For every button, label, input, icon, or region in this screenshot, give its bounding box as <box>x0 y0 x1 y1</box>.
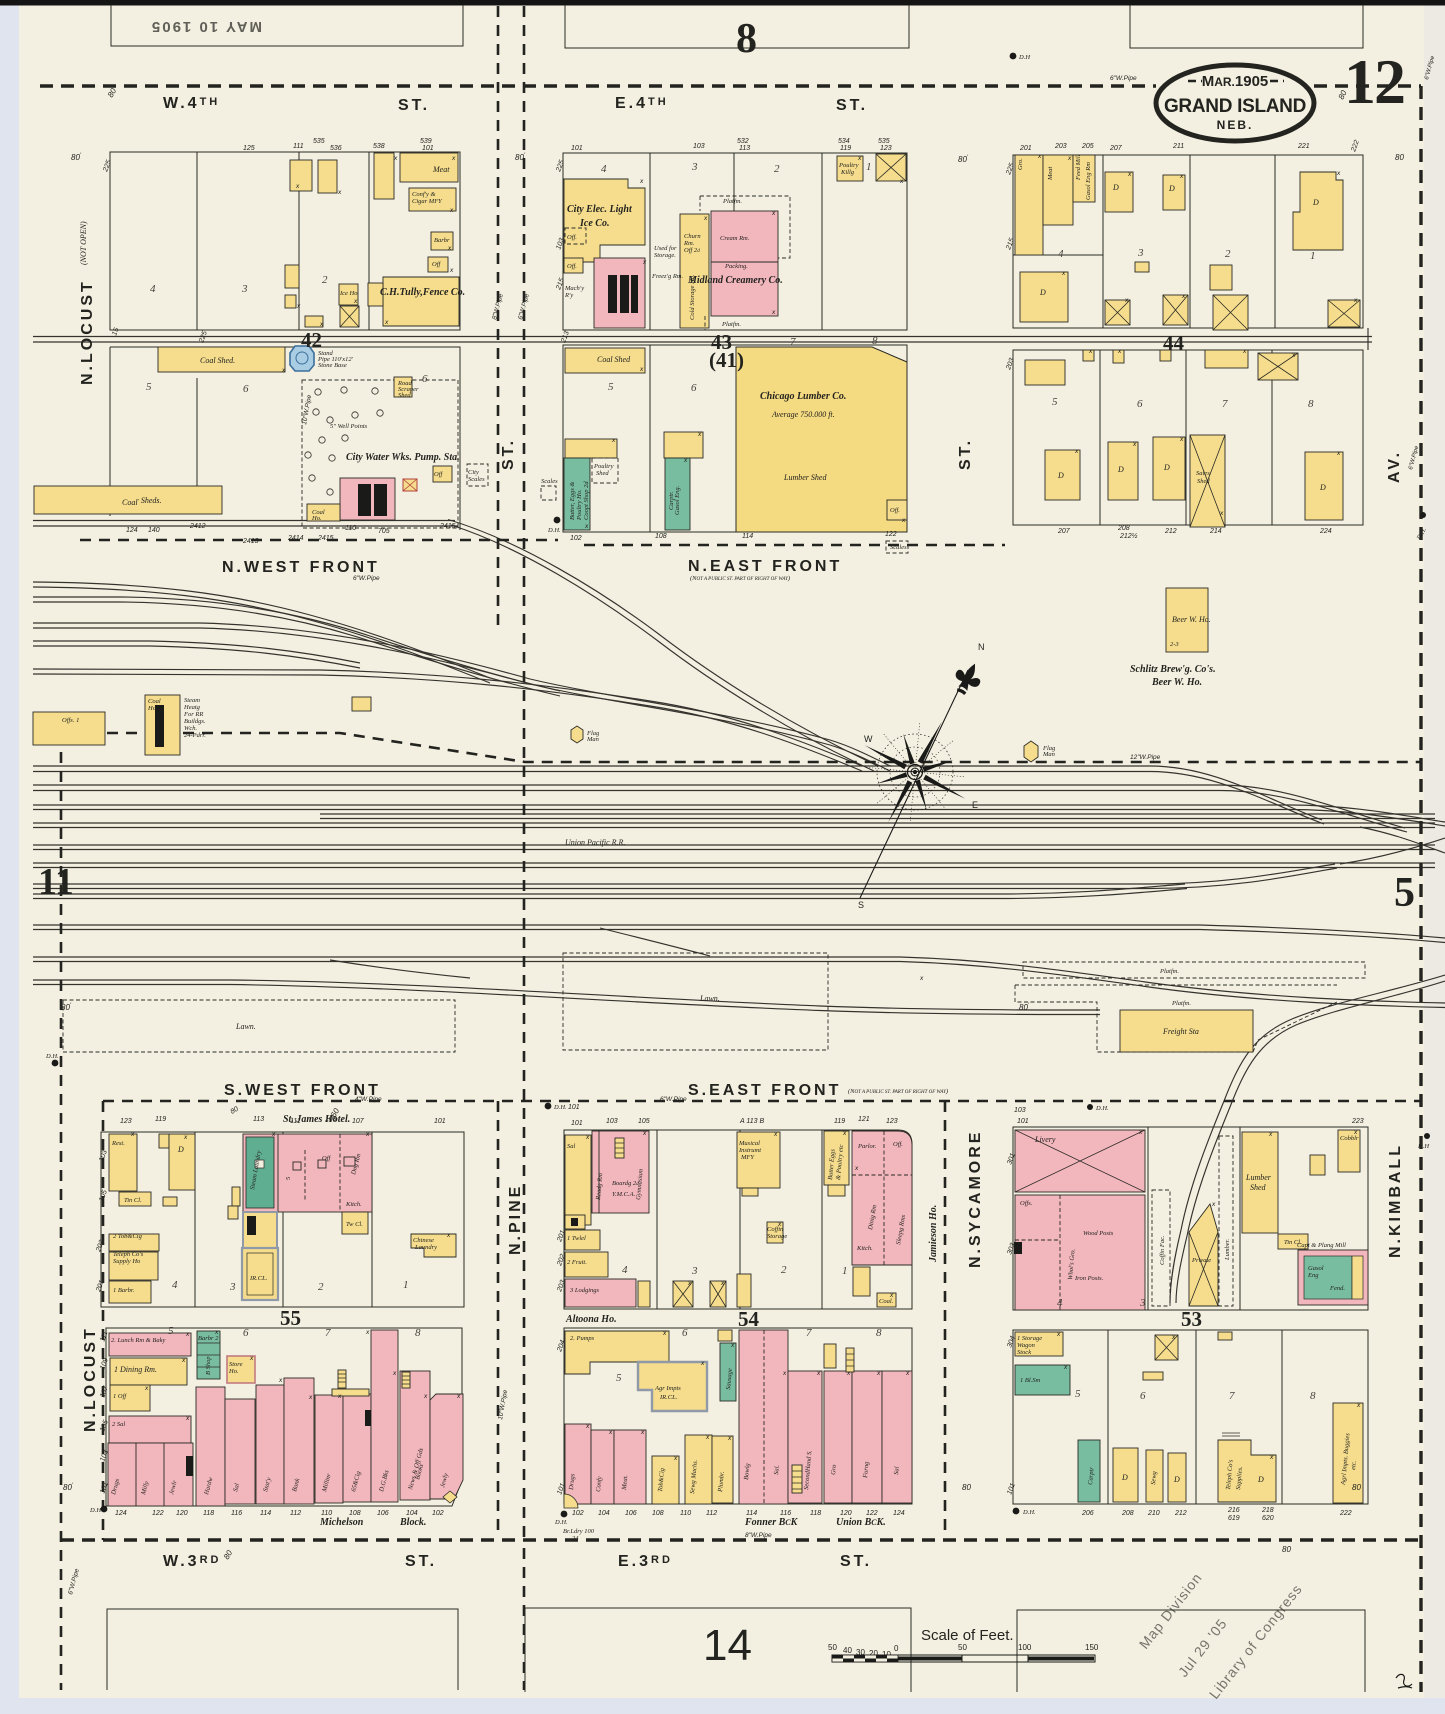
svg-text:Tw Cl.: Tw Cl. <box>346 1221 363 1228</box>
svg-text:Musical: Musical <box>738 1140 760 1147</box>
svg-text:D: D <box>1112 183 1119 192</box>
svg-text:221: 221 <box>1297 143 1310 150</box>
svg-text:538: 538 <box>373 143 385 150</box>
svg-text:Cobblr: Cobblr <box>1340 1135 1359 1142</box>
svg-text:Gasol: Gasol <box>1308 1265 1324 1272</box>
svg-text:Schlitz Brew'g. Co's.: Schlitz Brew'g. Co's. <box>1130 664 1216 675</box>
svg-text:208: 208 <box>1121 1510 1134 1517</box>
svg-text:Capt & Plang Mill: Capt & Plang Mill <box>1297 1242 1346 1249</box>
svg-text:Storage: Storage <box>767 1233 787 1240</box>
svg-text:Michelson: Michelson <box>319 1517 364 1528</box>
svg-text:100: 100 <box>1018 1643 1032 1652</box>
svg-text:Ice Co.: Ice Co. <box>579 218 609 229</box>
svg-text:150: 150 <box>1085 1643 1099 1652</box>
svg-text:Man: Man <box>1042 751 1055 758</box>
svg-text:101: 101 <box>434 1118 446 1125</box>
svg-text:216: 216 <box>1227 1507 1240 1514</box>
svg-text:218: 218 <box>1261 1507 1274 1514</box>
svg-text:80: 80 <box>1282 1545 1291 1554</box>
svg-text:109: 109 <box>325 1116 337 1123</box>
svg-text:City Water Wks. Pump. Sta.: City Water Wks. Pump. Sta. <box>346 452 460 463</box>
svg-text:6: 6 <box>1140 1390 1146 1402</box>
svg-text:Y.M.C.A.: Y.M.C.A. <box>612 1191 636 1198</box>
svg-text:5: 5 <box>608 381 614 393</box>
svg-text:Union BCK.: Union BCK. <box>836 1517 886 1528</box>
svg-text:City: City <box>468 469 479 476</box>
svg-text:Man: Man <box>586 736 599 743</box>
svg-text:120: 120 <box>176 1510 188 1517</box>
svg-text:1: 1 <box>403 1279 409 1291</box>
svg-text:122: 122 <box>866 1510 878 1517</box>
svg-text:14: 14 <box>703 1621 752 1670</box>
svg-text:Scales: Scales <box>890 544 907 551</box>
svg-text:Altoona Ho.: Altoona Ho. <box>565 1314 617 1325</box>
svg-text:Sal: Sal <box>893 1466 901 1475</box>
svg-text:112: 112 <box>706 1510 717 1517</box>
svg-text:Off 2d: Off 2d <box>684 247 700 254</box>
svg-text:44: 44 <box>1163 331 1185 355</box>
svg-text:110: 110 <box>321 1510 332 1517</box>
svg-text:203: 203 <box>1054 143 1067 150</box>
svg-text:Scales: Scales <box>541 478 558 485</box>
svg-text:S: S <box>858 900 864 910</box>
svg-text:Beer W. Ho.: Beer W. Ho. <box>1151 677 1202 688</box>
svg-text:8: 8 <box>1308 398 1314 410</box>
svg-text:ST.: ST. <box>836 97 868 114</box>
svg-text:8: 8 <box>876 1327 882 1339</box>
svg-text:Rest.: Rest. <box>111 1140 125 1147</box>
svg-text:Stone Base: Stone Base <box>318 362 347 369</box>
svg-text:1: 1 <box>1310 250 1316 262</box>
svg-text:3: 3 <box>1137 247 1144 259</box>
svg-text:Off: Off <box>434 471 444 478</box>
svg-text:4: 4 <box>601 163 607 175</box>
svg-text:6: 6 <box>691 382 697 394</box>
svg-text:4: 4 <box>1058 248 1064 260</box>
svg-text:24: 24 <box>572 1535 579 1542</box>
svg-text:Poultry: Poultry <box>838 162 859 169</box>
svg-text:211: 211 <box>1172 143 1184 150</box>
svg-text:201: 201 <box>1019 145 1032 152</box>
svg-text:4"W.Pipe: 4"W.Pipe <box>355 1096 382 1103</box>
svg-text:534: 534 <box>838 138 850 145</box>
svg-text:5: 5 <box>616 1372 622 1384</box>
svg-text:Mach'y: Mach'y <box>564 285 584 292</box>
svg-text:108: 108 <box>655 533 667 540</box>
svg-text:Fend.: Fend. <box>1329 1285 1345 1292</box>
svg-text:Steam: Steam <box>184 697 200 704</box>
svg-text:54: 54 <box>738 1307 760 1331</box>
svg-text:Wagon: Wagon <box>1017 1342 1035 1349</box>
svg-text:50: 50 <box>828 1643 837 1652</box>
svg-text:124: 124 <box>893 1510 905 1517</box>
svg-text:Midland Creamery Co.: Midland Creamery Co. <box>687 275 783 286</box>
svg-text:102: 102 <box>572 1510 584 1517</box>
svg-text:106: 106 <box>625 1510 637 1517</box>
svg-text:NEB.: NEB. <box>1217 118 1254 132</box>
svg-text:Kitch.: Kitch. <box>345 1201 362 1208</box>
svg-text:80: 80 <box>962 1483 971 1492</box>
svg-text:ST.: ST. <box>500 438 517 470</box>
svg-text:D: D <box>1173 1475 1180 1484</box>
svg-text:207: 207 <box>1109 145 1123 152</box>
svg-text:5: 5 <box>1052 396 1058 408</box>
svg-text:6: 6 <box>243 383 249 395</box>
svg-text:1 Barbr.: 1 Barbr. <box>113 1287 135 1294</box>
svg-text:Shed: Shed <box>1250 1183 1267 1192</box>
svg-text:Sewg: Sewg <box>1150 1470 1158 1485</box>
svg-text:Beer W. Ho.: Beer W. Ho. <box>1172 615 1211 624</box>
svg-text:6"W.Pipe: 6"W.Pipe <box>1110 75 1137 82</box>
svg-text:24-Pdrr.: 24-Pdrr. <box>184 732 206 739</box>
svg-text:Confy: Confy <box>595 1476 603 1492</box>
svg-text:Union Pacific R.R.: Union Pacific R.R. <box>565 838 625 847</box>
svg-text:6: 6 <box>1137 398 1143 410</box>
svg-text:535: 535 <box>313 138 325 145</box>
svg-text:3: 3 <box>691 161 698 173</box>
svg-text:104: 104 <box>406 1510 418 1517</box>
svg-text:535: 535 <box>878 138 890 145</box>
svg-text:40: 40 <box>843 1646 852 1655</box>
svg-text:223: 223 <box>1351 1118 1364 1125</box>
svg-text:MAY 10 1905: MAY 10 1905 <box>150 18 262 35</box>
svg-text:118: 118 <box>810 1510 821 1517</box>
svg-text:101: 101 <box>1017 1118 1029 1125</box>
svg-text:Platfm.: Platfm. <box>1171 1000 1191 1007</box>
svg-text:4: 4 <box>1057 1297 1063 1309</box>
svg-text:123: 123 <box>120 1118 132 1125</box>
svg-text:3: 3 <box>229 1281 236 1293</box>
svg-text:D.H.: D.H. <box>553 1104 567 1111</box>
svg-text:206: 206 <box>1081 1510 1094 1517</box>
svg-text:1 Off: 1 Off <box>113 1393 127 1400</box>
svg-text:2: 2 <box>781 1264 787 1276</box>
svg-text:6: 6 <box>422 373 428 385</box>
svg-text:Scale of Feet.: Scale of Feet. <box>921 1627 1014 1644</box>
svg-text:2412: 2412 <box>189 523 206 530</box>
svg-text:Platfm.: Platfm. <box>1159 968 1179 975</box>
svg-text:D.H.: D.H. <box>547 527 561 534</box>
svg-text:120: 120 <box>840 1510 852 1517</box>
svg-text:Sal.: Sal. <box>773 1464 781 1475</box>
svg-text:3 Lodgings: 3 Lodgings <box>569 1287 600 1294</box>
svg-text:Teleph Co's: Teleph Co's <box>113 1251 144 1258</box>
svg-text:2 Tob&Cig: 2 Tob&Cig <box>113 1233 143 1240</box>
svg-text:D: D <box>1163 463 1170 472</box>
svg-text:Scales: Scales <box>468 476 485 483</box>
svg-text:Butter, Eggs &: Butter, Eggs & <box>569 481 576 520</box>
svg-text:205: 205 <box>1081 143 1094 150</box>
svg-text:Parlor.: Parlor. <box>857 1143 877 1150</box>
svg-text:116: 116 <box>780 1510 791 1517</box>
svg-text:IR.CL.: IR.CL. <box>659 1394 678 1401</box>
svg-text:Iron Posts.: Iron Posts. <box>1074 1275 1104 1282</box>
svg-text:Eng: Eng <box>1307 1272 1319 1279</box>
svg-text:208: 208 <box>1117 525 1130 532</box>
svg-text:123: 123 <box>880 145 892 152</box>
svg-text:101: 101 <box>571 1120 583 1127</box>
svg-text:D: D <box>1319 483 1326 492</box>
svg-text:1 Twlel: 1 Twlel <box>567 1235 586 1242</box>
svg-text:Tin Cl.: Tin Cl. <box>124 1197 142 1204</box>
svg-text:ST.: ST. <box>840 1553 872 1570</box>
svg-text:Ho.: Ho. <box>311 515 322 522</box>
svg-text:Lawn.: Lawn. <box>699 994 720 1003</box>
svg-text:11: 11 <box>38 861 74 903</box>
svg-text:Meat: Meat <box>1047 166 1054 181</box>
svg-text:N.LOCUST: N.LOCUST <box>82 1326 99 1432</box>
svg-text:7: 7 <box>325 1327 331 1339</box>
svg-text:4: 4 <box>172 1279 178 1291</box>
svg-text:Meat: Meat <box>432 165 450 174</box>
svg-text:Off: Off <box>322 1155 332 1162</box>
svg-text:214: 214 <box>1209 528 1222 535</box>
svg-text:0: 0 <box>894 1644 899 1653</box>
svg-text:1 Storage: 1 Storage <box>1017 1335 1042 1342</box>
svg-text:6: 6 <box>243 1327 249 1339</box>
svg-text:Sal: Sal <box>567 1143 576 1150</box>
svg-text:Supply Ho: Supply Ho <box>113 1258 141 1265</box>
svg-text:12"W.Pipe: 12"W.Pipe <box>1130 754 1161 761</box>
svg-text:2: 2 <box>1225 248 1231 260</box>
svg-text:114: 114 <box>746 1510 757 1517</box>
svg-text:113: 113 <box>739 145 750 152</box>
svg-text:5: 5 <box>168 1325 174 1337</box>
svg-text:D: D <box>1039 288 1046 297</box>
svg-text:6"W.Pipe: 6"W.Pipe <box>660 1096 687 1103</box>
svg-text:Churn: Churn <box>684 233 701 240</box>
svg-text:D: D <box>1168 184 1175 193</box>
svg-text:Livery: Livery <box>1034 1135 1056 1144</box>
svg-text:108: 108 <box>349 1510 361 1517</box>
svg-text:Off.: Off. <box>567 263 577 270</box>
svg-text:6"W.Pipe: 6"W.Pipe <box>353 575 380 582</box>
svg-text:D: D <box>177 1145 184 1154</box>
svg-text:5: 5 <box>1394 870 1415 916</box>
svg-text:7: 7 <box>1229 1390 1235 1402</box>
svg-text:1: 1 <box>842 1265 848 1277</box>
svg-text:Boardg 2d: Boardg 2d <box>612 1180 639 1187</box>
svg-text:Off: Off <box>432 261 442 268</box>
svg-text:D: D <box>1057 471 1064 480</box>
svg-text:Offs.: Offs. <box>1020 1200 1033 1207</box>
svg-text:1 Dining Rm.: 1 Dining Rm. <box>114 1365 157 1374</box>
svg-text:Barbr 2: Barbr 2 <box>198 1335 219 1342</box>
svg-text:113: 113 <box>253 1116 264 1123</box>
svg-text:Freez'g Rm.: Freez'g Rm. <box>651 273 683 280</box>
svg-text:Private: Private <box>1191 1257 1211 1264</box>
svg-text:103: 103 <box>1014 1107 1026 1114</box>
svg-text:2415: 2415 <box>317 535 334 542</box>
svg-text:Buildgs.: Buildgs. <box>184 718 206 725</box>
svg-text:50: 50 <box>958 1643 967 1652</box>
svg-text:IR.CL.: IR.CL. <box>249 1275 268 1282</box>
svg-text:ST.: ST. <box>398 97 430 114</box>
svg-text:N.LOCUST: N.LOCUST <box>79 279 96 385</box>
svg-text:Killg: Killg <box>840 169 855 176</box>
svg-text:Ho.: Ho. <box>228 1368 239 1375</box>
svg-text:Barbr: Barbr <box>434 237 450 244</box>
svg-text:Carptr.: Carptr. <box>668 491 675 510</box>
svg-text:111: 111 <box>290 1118 301 1125</box>
svg-text:D.H: D.H <box>1018 54 1030 61</box>
svg-text:Rm.: Rm. <box>683 240 695 247</box>
svg-text:N.WEST FRONT: N.WEST FRONT <box>222 559 380 576</box>
svg-text:125: 125 <box>243 145 255 152</box>
svg-text:Stock: Stock <box>1017 1349 1031 1356</box>
svg-text:N.PINE: N.PINE <box>507 1184 524 1255</box>
svg-text:etc.: etc. <box>1350 1460 1358 1470</box>
svg-text:For RR: For RR <box>183 711 203 718</box>
svg-text:ST.: ST. <box>405 1553 437 1570</box>
svg-text:212: 212 <box>1164 528 1177 535</box>
svg-text:Lumber Shed: Lumber Shed <box>783 473 827 482</box>
svg-text:222: 222 <box>1339 1510 1352 1517</box>
svg-text:101: 101 <box>568 1104 580 1111</box>
svg-text:122: 122 <box>885 531 897 538</box>
svg-text:B Shop: B Shop <box>205 1356 212 1375</box>
svg-text:Conf'y &: Conf'y & <box>412 191 437 198</box>
svg-text:Wch.: Wch. <box>184 725 198 732</box>
svg-text:MFY: MFY <box>740 1154 755 1161</box>
svg-text:Cream Rm.: Cream Rm. <box>720 235 750 242</box>
svg-text:103: 103 <box>606 1118 618 1125</box>
svg-text:101: 101 <box>571 145 583 152</box>
svg-text:D.H.: D.H. <box>45 1053 59 1060</box>
svg-text:D.H: D.H <box>1417 1143 1429 1150</box>
svg-text:6: 6 <box>682 1327 688 1339</box>
svg-text:R'y: R'y <box>564 292 573 299</box>
svg-text:107: 107 <box>352 1118 365 1125</box>
svg-text:Packing.: Packing. <box>724 263 748 270</box>
svg-text:2: 2 <box>774 163 780 175</box>
svg-text:Platfm.: Platfm. <box>721 321 741 328</box>
svg-text:Poultry Ho.: Poultry Ho. <box>576 489 583 521</box>
svg-text:Meat.: Meat. <box>621 1474 629 1491</box>
svg-text:Kitch.: Kitch. <box>856 1245 873 1252</box>
svg-text:116: 116 <box>231 1510 242 1517</box>
svg-text:7: 7 <box>790 336 796 348</box>
svg-text:112: 112 <box>290 1510 301 1517</box>
svg-text:Heatg: Heatg <box>183 704 201 711</box>
svg-text:Off.: Off. <box>567 234 577 241</box>
svg-text:539: 539 <box>420 138 432 145</box>
svg-text:2413: 2413 <box>242 538 259 545</box>
svg-text:110: 110 <box>680 1510 691 1517</box>
svg-text:Used for: Used for <box>654 245 677 252</box>
svg-text:Average 750.000 ft.: Average 750.000 ft. <box>771 410 835 419</box>
svg-text:53: 53 <box>1181 1307 1202 1331</box>
svg-text:Coal.: Coal. <box>879 1298 894 1305</box>
svg-text:Ice Ho: Ice Ho <box>339 290 358 297</box>
svg-text:2 Sal: 2 Sal <box>112 1421 125 1428</box>
svg-text:Block.: Block. <box>399 1517 426 1528</box>
svg-text:S.EAST FRONT: S.EAST FRONT <box>688 1082 841 1099</box>
svg-text:2. Lunch Rm & Baky: 2. Lunch Rm & Baky <box>111 1337 165 1344</box>
svg-text:Sales: Sales <box>1196 470 1210 477</box>
svg-text:620: 620 <box>1262 1515 1274 1522</box>
svg-text:D.H.: D.H. <box>1095 1105 1109 1112</box>
svg-text:4: 4 <box>150 283 156 295</box>
svg-text:MAR.1905: MAR.1905 <box>1202 73 1269 90</box>
svg-text:D.H: D.H <box>89 1507 101 1514</box>
svg-text:Fonner BCK: Fonner BCK <box>744 1517 799 1528</box>
svg-text:D: D <box>1117 465 1124 474</box>
svg-text:Gasol Eng Rm: Gasol Eng Rm <box>1085 162 1092 200</box>
svg-text:102: 102 <box>570 535 582 542</box>
svg-text:(NOT A PUBLIC ST. PART OF RIGH: (NOT A PUBLIC ST. PART OF RIGHT OF WAY) <box>848 1088 948 1095</box>
svg-text:114: 114 <box>742 533 753 540</box>
svg-text:(41): (41) <box>709 348 744 372</box>
svg-text:5: 5 <box>146 381 152 393</box>
svg-text:Coal: Coal <box>148 698 161 705</box>
svg-text:105: 105 <box>638 1118 650 1125</box>
svg-text:N.EAST FRONT: N.EAST FRONT <box>688 558 842 575</box>
svg-text:212½: 212½ <box>1119 532 1138 540</box>
svg-text:119: 119 <box>840 145 851 152</box>
svg-text:W: W <box>864 734 873 744</box>
svg-text:140: 140 <box>148 527 160 534</box>
svg-text:8: 8 <box>1310 1390 1316 1402</box>
svg-text:Freight Sta: Freight Sta <box>1162 1027 1199 1036</box>
svg-text:D.H.: D.H. <box>1022 1509 1036 1516</box>
svg-text:Agr Impts: Agr Impts <box>654 1385 681 1392</box>
svg-text:Platfm.: Platfm. <box>722 198 742 205</box>
svg-text:N.SYCAMORE: N.SYCAMORE <box>967 1130 984 1268</box>
svg-text:2415: 2415 <box>439 523 456 530</box>
svg-text:5" Well Points: 5" Well Points <box>330 423 368 430</box>
svg-text:619: 619 <box>1228 1515 1240 1522</box>
svg-text:55: 55 <box>280 1306 301 1330</box>
svg-text:8: 8 <box>415 1327 421 1339</box>
svg-text:3: 3 <box>1139 1297 1146 1309</box>
svg-text:E: E <box>972 800 978 810</box>
svg-text:110: 110 <box>345 525 356 532</box>
svg-text:(NOT A PUBLIC ST. PART OF RIGH: (NOT A PUBLIC ST. PART OF RIGHT OF WAY) <box>690 575 790 582</box>
svg-text:Off.: Off. <box>890 507 900 514</box>
svg-text:Chinese: Chinese <box>413 1237 434 1244</box>
svg-text:C.H.Tully,Fence Co.: C.H.Tully,Fence Co. <box>380 287 465 298</box>
svg-text:Ho.: Ho. <box>147 705 158 712</box>
svg-text:Gro.: Gro. <box>1017 158 1024 170</box>
svg-text:108: 108 <box>652 1510 664 1517</box>
svg-text:N: N <box>978 642 985 652</box>
svg-text:Coffin Fac.: Coffin Fac. <box>1159 1235 1166 1265</box>
svg-text:Shed: Shed <box>398 392 411 399</box>
svg-text:Store: Store <box>229 1361 243 1368</box>
svg-text:121: 121 <box>858 1116 870 1123</box>
svg-text:2: 2 <box>322 274 328 286</box>
svg-text:Gro: Gro <box>830 1464 838 1476</box>
svg-text:536: 536 <box>330 145 342 152</box>
svg-text:2 Fruit.: 2 Fruit. <box>567 1259 587 1266</box>
svg-text:124: 124 <box>126 527 138 534</box>
svg-text:Wood Posts: Wood Posts <box>1083 1230 1114 1237</box>
svg-text:106: 106 <box>377 1510 389 1517</box>
svg-text:119: 119 <box>155 1116 166 1123</box>
svg-text:5: 5 <box>1075 1388 1081 1400</box>
svg-text:Br.Ldry 100: Br.Ldry 100 <box>563 1528 595 1535</box>
svg-text:Coal Shed.: Coal Shed. <box>200 356 235 365</box>
svg-text:Cigar MFY: Cigar MFY <box>412 198 443 205</box>
svg-text:Chicago Lumber Co.: Chicago Lumber Co. <box>760 391 846 402</box>
svg-text:Lawn.: Lawn. <box>235 1022 256 1031</box>
svg-text:Lumber: Lumber <box>1245 1173 1272 1182</box>
svg-text:City Elec. Light: City Elec. Light <box>567 204 633 215</box>
svg-text:Laundry: Laundry <box>414 1244 437 1251</box>
svg-text:Offs. 1: Offs. 1 <box>62 717 79 724</box>
svg-text:8: 8 <box>872 335 878 347</box>
